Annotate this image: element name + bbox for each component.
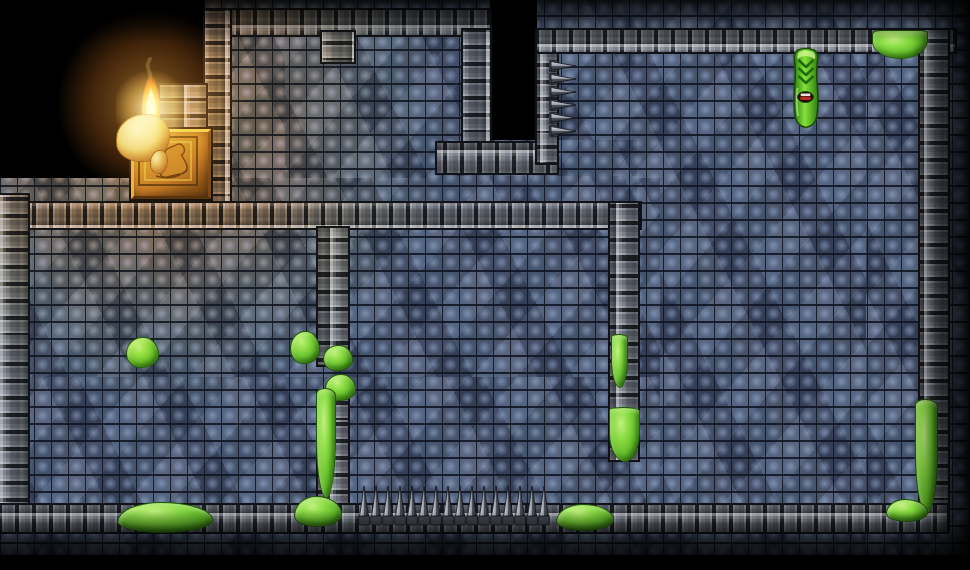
floor-spike-row	[358, 484, 560, 528]
doorway-slime-b	[323, 345, 353, 371]
game-viewport[interactable]	[0, 0, 970, 570]
top-room-door-stub	[322, 32, 354, 62]
left-divider-upper	[318, 228, 348, 365]
central-wall	[0, 203, 640, 228]
south-wall-slime-west	[117, 502, 213, 533]
green-worm-creature[interactable]	[789, 46, 823, 130]
doorway-slime-a	[290, 331, 320, 364]
divider-slime-pool-left	[294, 496, 342, 527]
south-wall-slime-mid	[556, 504, 614, 531]
torch-smoke	[148, 40, 149, 41]
wall-spike-row	[549, 60, 579, 146]
east-corner-slime-pool	[886, 499, 928, 522]
floor-slime-left-room	[126, 337, 159, 368]
west-outer-wall	[0, 195, 28, 530]
right-divider-slime-drip	[611, 334, 628, 388]
